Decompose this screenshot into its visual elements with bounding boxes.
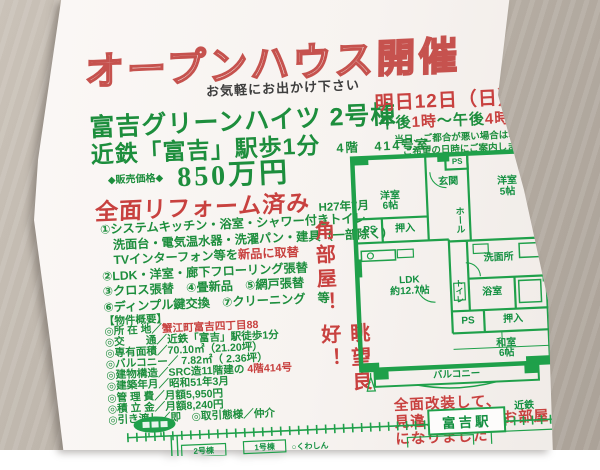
floorplan-label-balcony: バルコニー xyxy=(433,369,481,382)
floorplan-label-ldk: LDK 約12.7帖 xyxy=(389,275,429,298)
map-building2-label: 2号棟 xyxy=(193,445,215,456)
floorplan-label-bath: 浴室 xyxy=(482,287,502,298)
price-label: ◆販売価格◆ xyxy=(107,168,163,185)
map-building1-label: 1号棟 xyxy=(254,441,276,452)
floorplan-label-ps-right: PS xyxy=(461,317,475,328)
floorplan-label-western-room-1: 洋室 6帖 xyxy=(380,191,401,213)
event-time: 午後1時～午後4時 xyxy=(379,107,511,134)
floorplan-label-hall: ホール xyxy=(454,206,466,233)
floorplan-label-closet-left: 押入 xyxy=(395,224,415,235)
corner-room-text: 角部屋！ xyxy=(308,219,341,322)
floorplan-label-closet-right: 押入 xyxy=(503,314,523,325)
floorplan-label-washroom: 洗面所 xyxy=(483,253,513,265)
desk-background: オープンハウス開催 お気軽にお出かけ下さい 富吉グリーンハイツ 2号棟 近鉄「富… xyxy=(0,0,600,450)
floorplan-label-toilet: トイレ xyxy=(453,279,465,303)
floorplan-label-ps-top: PS xyxy=(452,156,463,167)
floorplan: 洋室 6帖 PS 押入 PS 玄関 ホール 洋室 5帖 洗面所 浴室 トイレ P… xyxy=(349,147,555,393)
floorplan-label-western-room-2: 洋室 5帖 xyxy=(497,176,518,198)
flyer-shadow: オープンハウス開催 お気軽にお出かけ下さい 富吉グリーンハイツ 2号棟 近鉄「富… xyxy=(0,0,600,450)
flyer-paper: オープンハウス開催 お気軽にお出かけ下さい 富吉グリーンハイツ 2号棟 近鉄「富… xyxy=(0,0,600,450)
floorplan-label-entrance: 玄関 xyxy=(438,177,458,188)
floorplan-label-japanese-room: 和室 6帖 xyxy=(496,338,517,360)
floorplan-label-ps-left: PS xyxy=(363,226,377,237)
flyer-content: オープンハウス開催 お気軽にお出かけ下さい 富吉グリーンハイツ 2号棟 近鉄「富… xyxy=(0,0,600,463)
map-line-label: 近鉄 xyxy=(514,398,535,412)
map-station-label: 富吉駅 xyxy=(442,413,492,431)
train-icon xyxy=(133,416,176,434)
